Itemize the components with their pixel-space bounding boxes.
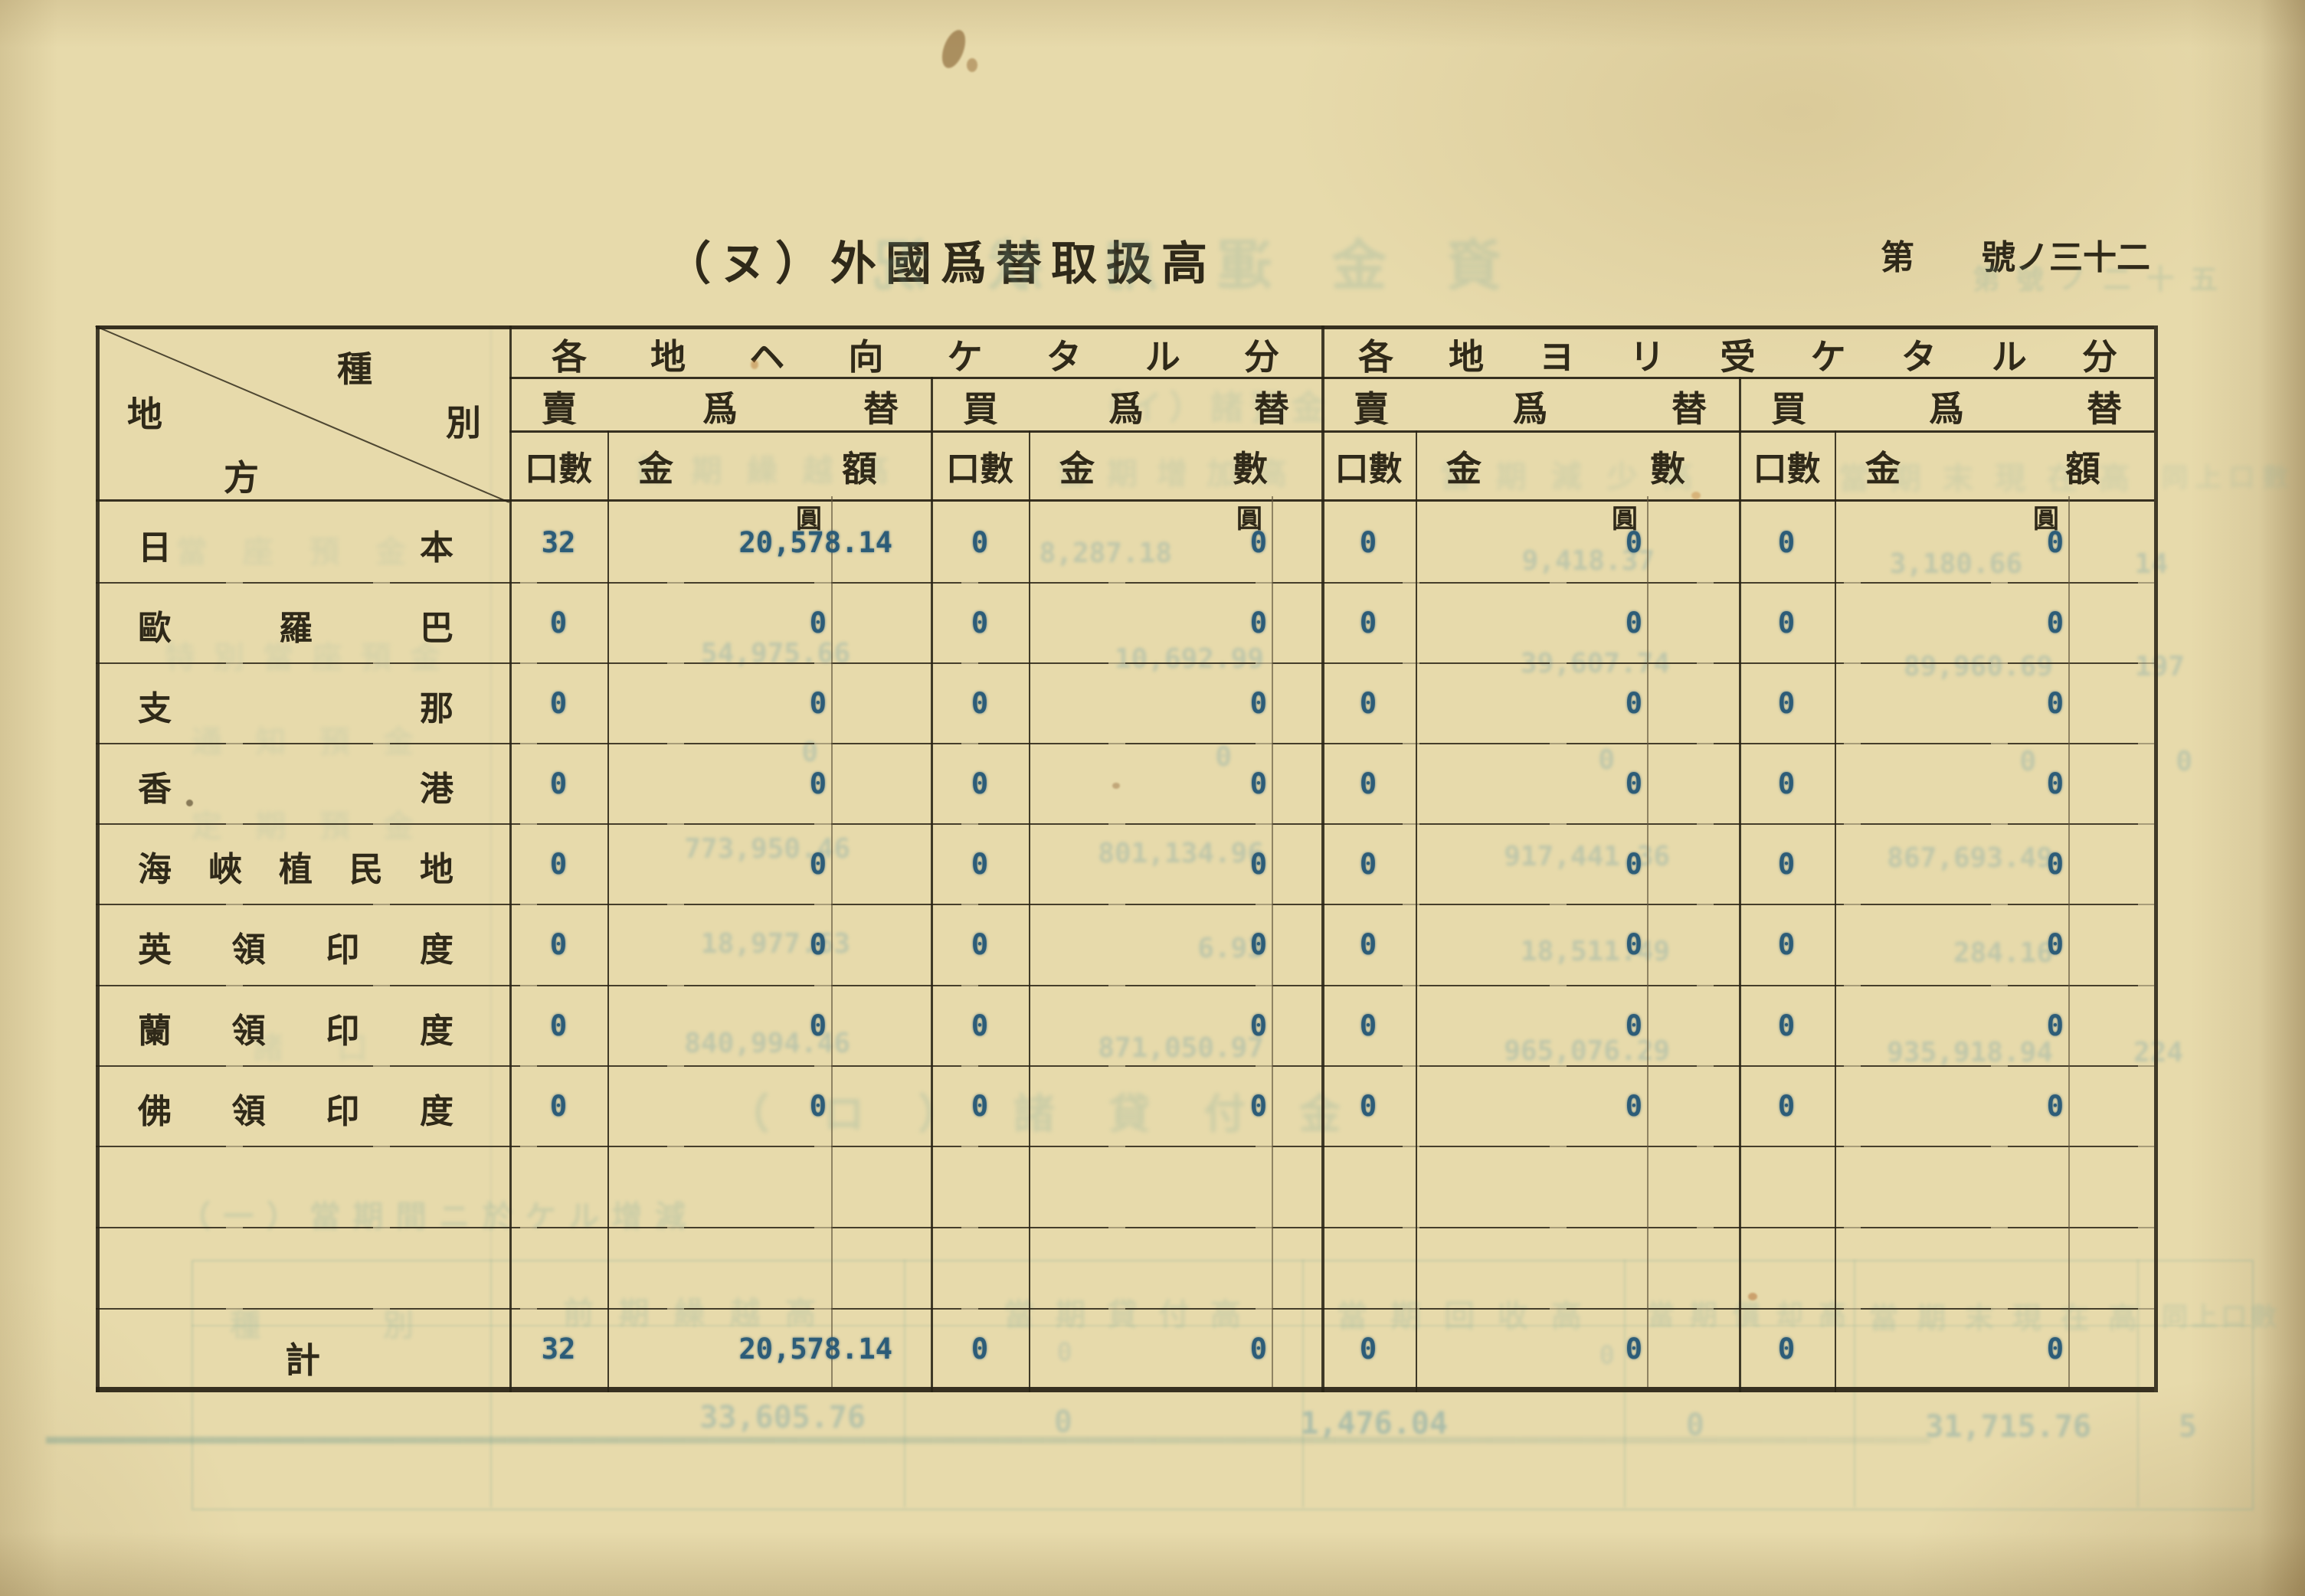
scanned-ledger-page: 第 號ノ三十二 （ヌ）外國爲替取扱高 資金運用狀況第號ノ二十五（イ）諸預金當座預…: [0, 0, 2305, 1596]
paper-stain: [1691, 492, 1701, 499]
paper-stain: [1112, 783, 1120, 789]
paper-stain: [1748, 1293, 1757, 1300]
paper-stain: [967, 58, 977, 72]
paper-stain: [751, 360, 758, 369]
paper-stain: [938, 27, 970, 71]
paper-stain-layer: [0, 0, 2305, 1596]
paper-stain: [186, 800, 193, 806]
